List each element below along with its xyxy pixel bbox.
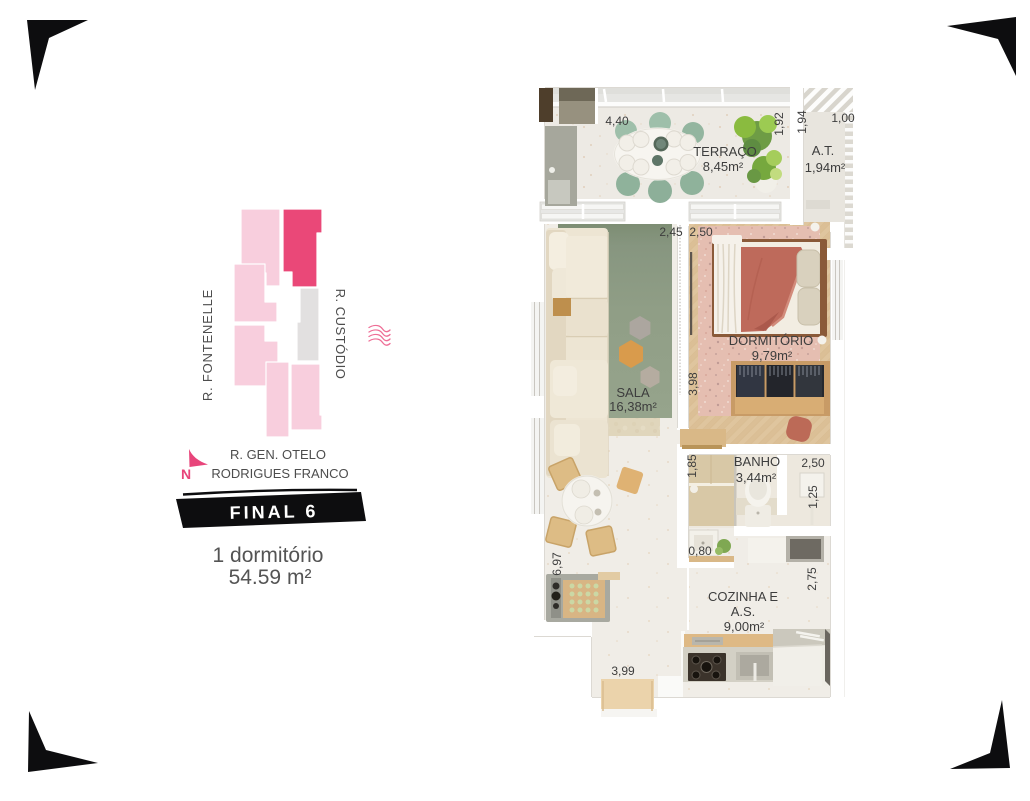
svg-text:4,40: 4,40 (605, 114, 629, 128)
svg-text:N: N (181, 466, 191, 482)
svg-text:1,85: 1,85 (685, 454, 699, 478)
svg-text:54.59 m²: 54.59 m² (229, 566, 312, 589)
svg-text:2,50: 2,50 (689, 225, 713, 239)
svg-text:SALA: SALA (616, 385, 650, 400)
svg-text:A.S.: A.S. (731, 604, 756, 619)
svg-text:1,92: 1,92 (772, 112, 786, 136)
svg-text:3,98: 3,98 (686, 372, 700, 396)
svg-text:1 dormitório: 1 dormitório (213, 544, 324, 567)
svg-text:9,79m²: 9,79m² (752, 348, 793, 363)
svg-text:1,25: 1,25 (806, 485, 820, 509)
svg-text:R. CUSTÓDIO: R. CUSTÓDIO (333, 289, 348, 380)
svg-text:6,97: 6,97 (550, 552, 564, 576)
svg-text:FINAL 6: FINAL 6 (229, 501, 318, 523)
svg-text:COZINHA E: COZINHA E (708, 589, 778, 604)
svg-text:9,00m²: 9,00m² (724, 619, 765, 634)
svg-text:DORMITÓRIO: DORMITÓRIO (729, 333, 814, 348)
svg-text:16,38m²: 16,38m² (609, 399, 657, 414)
svg-text:BANHO: BANHO (734, 454, 780, 469)
svg-text:1,94m²: 1,94m² (805, 160, 846, 175)
svg-text:A.T.: A.T. (812, 143, 834, 158)
svg-text:TERRAÇO: TERRAÇO (693, 144, 757, 159)
svg-text:2,75: 2,75 (805, 567, 819, 591)
svg-text:R. GEN. OTELO: R. GEN. OTELO (230, 447, 326, 462)
svg-text:0,80: 0,80 (688, 544, 712, 558)
svg-text:3,99: 3,99 (611, 664, 635, 678)
svg-text:2,45: 2,45 (659, 225, 683, 239)
svg-text:3,44m²: 3,44m² (736, 470, 777, 485)
svg-text:1,94: 1,94 (795, 110, 809, 134)
svg-text:1,00: 1,00 (831, 111, 855, 125)
svg-text:R. FONTENELLE: R. FONTENELLE (200, 289, 215, 401)
svg-text:2,50: 2,50 (801, 456, 825, 470)
svg-text:8,45m²: 8,45m² (703, 159, 744, 174)
svg-text:RODRIGUES FRANCO: RODRIGUES FRANCO (211, 466, 348, 481)
